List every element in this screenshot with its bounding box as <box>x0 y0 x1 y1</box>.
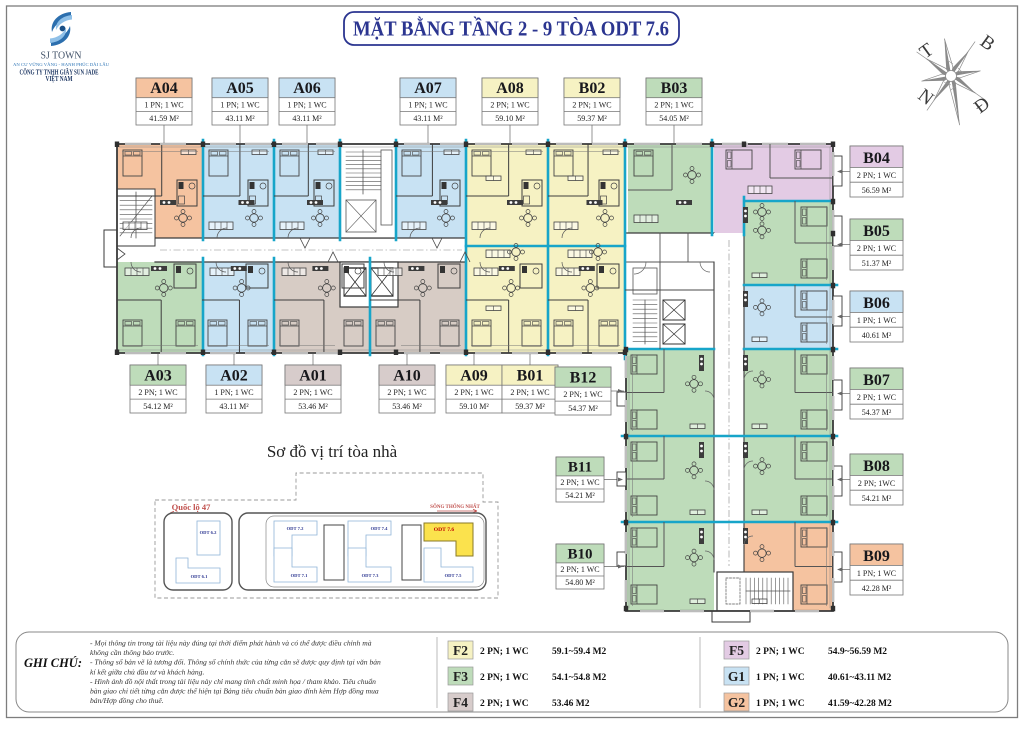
svg-text:bàn giao chi tiết từng căn đượ: bàn giao chi tiết từng căn được thể hiện… <box>90 687 379 696</box>
svg-text:2 PN; 1 WC: 2 PN; 1 WC <box>480 673 529 683</box>
svg-text:- Hình ảnh đồ nội thất trong t: - Hình ảnh đồ nội thất trong tài liệu nà… <box>90 677 376 686</box>
svg-text:1 PN; 1 WC: 1 PN; 1 WC <box>756 699 805 709</box>
svg-text:59.10 M²: 59.10 M² <box>459 402 489 411</box>
svg-text:54.21 M²: 54.21 M² <box>565 491 595 500</box>
svg-text:59.10 M²: 59.10 M² <box>495 114 525 123</box>
svg-text:B04: B04 <box>863 150 890 167</box>
svg-text:G1: G1 <box>728 669 746 684</box>
svg-text:54.05 M²: 54.05 M² <box>659 114 689 123</box>
svg-text:53.46 M²: 53.46 M² <box>392 402 422 411</box>
svg-text:AN CƯ VỮNG VÀNG - HẠNH PHÚC DÀ: AN CƯ VỮNG VÀNG - HẠNH PHÚC DÀI LÂU <box>13 62 110 67</box>
svg-text:2 PN; 1 WC: 2 PN; 1 WC <box>857 244 896 253</box>
svg-text:A06: A06 <box>293 80 321 97</box>
svg-text:2 PN; 1 WC: 2 PN; 1 WC <box>480 647 529 657</box>
svg-text:A07: A07 <box>414 80 442 97</box>
svg-text:bán/Hợp đồng cho thuê.: bán/Hợp đồng cho thuê. <box>90 696 164 705</box>
svg-text:51.37 M²: 51.37 M² <box>862 259 892 268</box>
svg-text:59.37 M²: 59.37 M² <box>577 114 607 123</box>
svg-text:1 PN; 1 WC: 1 PN; 1 WC <box>214 388 253 397</box>
svg-text:1 PN; 1 WC: 1 PN; 1 WC <box>287 100 326 109</box>
svg-text:F5: F5 <box>729 643 744 658</box>
svg-text:2 PN; 1 WC: 2 PN; 1 WC <box>560 478 599 487</box>
svg-text:59.1~59.4 M2: 59.1~59.4 M2 <box>552 647 607 657</box>
svg-text:A10: A10 <box>393 368 421 385</box>
svg-text:54.9~56.59 M2: 54.9~56.59 M2 <box>828 647 887 657</box>
svg-text:A08: A08 <box>496 80 524 97</box>
svg-text:2 PN; 1 WC: 2 PN; 1 WC <box>387 388 426 397</box>
svg-text:59.37 M²: 59.37 M² <box>515 402 545 411</box>
svg-text:SJ TOWN: SJ TOWN <box>41 51 82 62</box>
svg-text:ODT 7.5: ODT 7.5 <box>445 573 462 578</box>
svg-text:Quốc lộ 47: Quốc lộ 47 <box>172 502 211 512</box>
svg-text:A03: A03 <box>144 368 172 385</box>
svg-text:B12: B12 <box>570 370 597 387</box>
svg-text:ODT 6.1: ODT 6.1 <box>191 574 208 579</box>
svg-text:2 PN; 1 WC: 2 PN; 1 WC <box>480 699 529 709</box>
svg-text:54.37 M²: 54.37 M² <box>862 408 892 417</box>
svg-text:Sơ đồ vị trí tòa nhà: Sơ đồ vị trí tòa nhà <box>267 442 398 461</box>
svg-text:B10: B10 <box>567 546 592 562</box>
svg-text:B09: B09 <box>863 548 890 565</box>
svg-text:56.59 M²: 56.59 M² <box>862 186 892 195</box>
svg-text:SÔNG THỐNG NHẤT: SÔNG THỐNG NHẤT <box>430 504 480 510</box>
svg-text:54.21 M²: 54.21 M² <box>862 494 892 503</box>
svg-text:2 PN; 1 WC: 2 PN; 1 WC <box>293 388 332 397</box>
svg-text:1 PN; 1 WC: 1 PN; 1 WC <box>220 100 259 109</box>
svg-text:- Mọi thông tin trong tài liệu: - Mọi thông tin trong tài liệu này đúng … <box>90 639 372 648</box>
svg-text:A01: A01 <box>299 368 327 385</box>
svg-text:B11: B11 <box>568 459 592 475</box>
svg-text:54.12 M²: 54.12 M² <box>143 402 173 411</box>
svg-text:2 PN; 1 WC: 2 PN; 1 WC <box>857 171 896 180</box>
svg-text:2 PN; 1 WC: 2 PN; 1 WC <box>454 388 493 397</box>
svg-text:42.28 M²: 42.28 M² <box>862 584 892 593</box>
svg-text:2 PN; 1 WC: 2 PN; 1 WC <box>138 388 177 397</box>
svg-text:A04: A04 <box>150 80 178 97</box>
svg-text:MẶT BẰNG TẦNG 2 - 9 TÒA ODT 7.: MẶT BẰNG TẦNG 2 - 9 TÒA ODT 7.6 <box>353 17 669 41</box>
svg-text:không cần thông báo trước.: không cần thông báo trước. <box>90 648 174 657</box>
svg-text:ODT 7.1: ODT 7.1 <box>291 573 308 578</box>
svg-text:A09: A09 <box>460 368 488 385</box>
svg-text:B08: B08 <box>863 458 890 475</box>
svg-text:1 PN; 1 WC: 1 PN; 1 WC <box>408 100 447 109</box>
svg-text:ODT 7.4: ODT 7.4 <box>371 526 388 531</box>
svg-text:41.59~42.28 M2: 41.59~42.28 M2 <box>828 699 892 709</box>
svg-text:54.1~54.8 M2: 54.1~54.8 M2 <box>552 673 607 683</box>
svg-text:40.61~43.11 M2: 40.61~43.11 M2 <box>828 673 892 683</box>
svg-text:2 PN; 1 WC: 2 PN; 1 WC <box>654 100 693 109</box>
svg-text:2 PN; 1 WC: 2 PN; 1 WC <box>563 390 602 399</box>
svg-text:B07: B07 <box>863 372 890 389</box>
svg-text:1 PN; 1 WC: 1 PN; 1 WC <box>144 100 183 109</box>
svg-text:ODT 7.6: ODT 7.6 <box>434 527 455 533</box>
svg-text:ODT 6.2: ODT 6.2 <box>200 530 217 535</box>
svg-text:1 PN; 1 WC: 1 PN; 1 WC <box>857 316 896 325</box>
svg-text:A02: A02 <box>220 368 248 385</box>
svg-text:B06: B06 <box>863 295 890 312</box>
svg-text:43.11 M²: 43.11 M² <box>219 402 249 411</box>
svg-text:54.80 M²: 54.80 M² <box>565 578 595 587</box>
svg-text:54.37 M²: 54.37 M² <box>568 404 598 413</box>
svg-text:G2: G2 <box>728 695 746 710</box>
svg-text:2 PN; 1 WC: 2 PN; 1 WC <box>560 565 599 574</box>
svg-text:B02: B02 <box>579 80 606 97</box>
svg-text:B03: B03 <box>661 80 688 97</box>
svg-text:41.59 M²: 41.59 M² <box>149 114 179 123</box>
svg-text:B01: B01 <box>517 368 544 385</box>
svg-text:43.11 M²: 43.11 M² <box>225 114 255 123</box>
svg-text:2 PN; 1 WC: 2 PN; 1 WC <box>857 393 896 402</box>
svg-text:GHI CHÚ:: GHI CHÚ: <box>24 656 82 670</box>
svg-text:kí kết giữa chủ đầu tư và khác: kí kết giữa chủ đầu tư và khách hàng. <box>90 667 204 676</box>
svg-text:1 PN; 1 WC: 1 PN; 1 WC <box>857 569 896 578</box>
svg-text:B05: B05 <box>863 223 890 240</box>
svg-text:ODT 7.2: ODT 7.2 <box>287 526 304 531</box>
svg-text:43.11 M²: 43.11 M² <box>413 114 443 123</box>
svg-text:53.46 M²: 53.46 M² <box>298 402 328 411</box>
svg-text:1 PN; 1 WC: 1 PN; 1 WC <box>756 673 805 683</box>
svg-text:2 PN; 1 WC: 2 PN; 1 WC <box>572 100 611 109</box>
svg-text:2 PN; 1 WC: 2 PN; 1 WC <box>756 647 805 657</box>
svg-text:40.61 M²: 40.61 M² <box>862 331 892 340</box>
svg-text:ODT 7.3: ODT 7.3 <box>362 573 379 578</box>
svg-text:2 PN; 1 WC: 2 PN; 1 WC <box>510 388 549 397</box>
svg-text:2 PN; 1 WC: 2 PN; 1 WC <box>490 100 529 109</box>
svg-text:F2: F2 <box>453 643 468 658</box>
svg-text:53.46 M2: 53.46 M2 <box>552 699 590 709</box>
svg-text:A05: A05 <box>226 80 254 97</box>
svg-text:VIỆT NAM: VIỆT NAM <box>46 75 73 83</box>
svg-text:43.11 M²: 43.11 M² <box>292 114 322 123</box>
svg-text:F4: F4 <box>453 695 468 710</box>
svg-text:F3: F3 <box>453 669 468 684</box>
svg-text:2 PN; 1WC: 2 PN; 1WC <box>858 479 895 488</box>
svg-text:- Thông số bản vẽ là tương đối: - Thông số bản vẽ là tương đối. Thông số… <box>90 658 381 667</box>
